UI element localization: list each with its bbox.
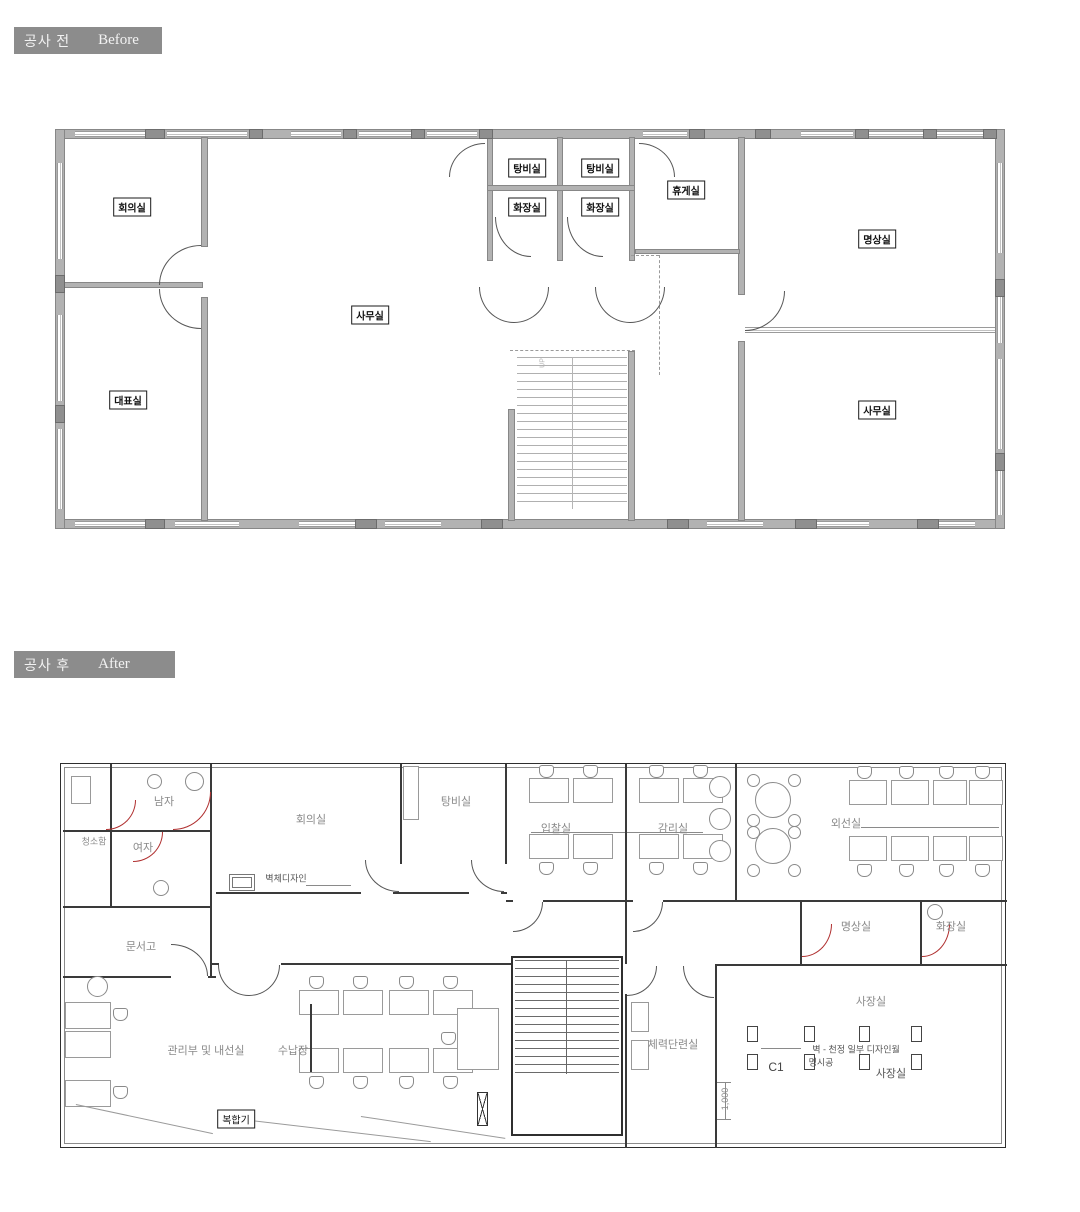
- room-label-office_center: 사무실: [351, 306, 389, 325]
- window: [935, 131, 985, 137]
- desk: [573, 834, 613, 859]
- chair: [353, 1076, 368, 1089]
- chair: [399, 976, 414, 989]
- chair: [441, 1032, 456, 1045]
- desk: [65, 1080, 111, 1107]
- window: [175, 521, 239, 527]
- room-label-men: 남자: [154, 793, 174, 809]
- desk: [529, 778, 569, 803]
- wall-segment: [738, 341, 745, 521]
- wall-segment: [625, 900, 627, 964]
- room-label-pantry_1: 탕비실: [508, 159, 546, 178]
- column-post: [859, 1054, 870, 1070]
- desk: [299, 990, 339, 1015]
- door-swing-arc: [683, 966, 714, 998]
- chair: [309, 976, 324, 989]
- column: [923, 129, 937, 139]
- chair: [113, 1008, 128, 1021]
- column: [667, 519, 689, 529]
- round-chair: [87, 976, 108, 997]
- wall-segment: [506, 900, 513, 902]
- column: [343, 129, 357, 139]
- column: [55, 405, 65, 423]
- diagonal-line: [76, 1104, 213, 1134]
- desk: [849, 780, 887, 805]
- chair: [539, 862, 554, 875]
- window: [57, 163, 63, 259]
- wall-segment: [716, 964, 1007, 966]
- chair: [649, 765, 664, 778]
- after-header-korean: 공사 후: [24, 655, 70, 675]
- column-post: [804, 1026, 815, 1042]
- dashed-line: [510, 350, 635, 351]
- room-label-outside_line: 외선실: [831, 815, 861, 831]
- room-label-admin: 관리부 및 내선실: [168, 1042, 245, 1058]
- round-chair: [709, 776, 731, 798]
- desk: [389, 990, 429, 1015]
- leader-line: [861, 827, 999, 828]
- window: [745, 327, 995, 333]
- column: [755, 129, 771, 139]
- column: [355, 519, 377, 529]
- room-label-cleaning: 청소함: [82, 835, 107, 848]
- wall-segment: [400, 764, 402, 864]
- window: [75, 521, 145, 527]
- desk: [343, 1048, 383, 1073]
- chair: [899, 864, 914, 877]
- room-label-ceo: 대표실: [109, 391, 147, 410]
- room-label-lounge: 휴게실: [667, 181, 705, 200]
- door-swing-arc: [745, 291, 785, 331]
- room-label-bidding: 입찰실: [541, 820, 571, 836]
- wall-segment: [201, 297, 208, 521]
- chair: [975, 766, 990, 779]
- leader-line: [761, 1048, 801, 1049]
- round-chair: [788, 826, 801, 839]
- wall-segment: [201, 137, 208, 247]
- door-swing-arc: [513, 902, 543, 932]
- chair: [443, 976, 458, 989]
- door-swing-arc: [365, 860, 399, 892]
- chair: [443, 1076, 458, 1089]
- desk: [389, 1048, 429, 1073]
- window: [643, 131, 687, 137]
- annotation-president_small: 사장실: [876, 1065, 906, 1081]
- room-label-meeting: 회의실: [296, 811, 326, 827]
- room-label-supervision: 감리실: [658, 820, 688, 836]
- column-post: [747, 1026, 758, 1042]
- wall-segment: [310, 1004, 312, 1072]
- room-label-toilet_2: 화장실: [581, 198, 619, 217]
- wall-segment: [501, 892, 507, 894]
- column: [983, 129, 997, 139]
- window: [359, 131, 411, 137]
- wall-segment: [625, 994, 627, 1148]
- window: [707, 521, 763, 527]
- wall-segment: [738, 137, 745, 295]
- annotation-wall_design: 벽체디자인: [265, 872, 306, 885]
- wall-segment: [628, 351, 635, 521]
- chair: [583, 862, 598, 875]
- door-swing-arc: [449, 143, 485, 177]
- room-label-archive: 문서고: [126, 938, 156, 954]
- stair-center-line: [572, 357, 573, 509]
- wall-segment: [487, 185, 635, 191]
- sink: [153, 880, 169, 896]
- room-label-copier: 복합기: [217, 1110, 255, 1129]
- door-swing-arc: [218, 965, 249, 996]
- round-chair: [709, 808, 731, 830]
- chair: [857, 864, 872, 877]
- column: [917, 519, 939, 529]
- wall-segment: [735, 764, 737, 900]
- desk: [933, 780, 967, 805]
- chair: [899, 766, 914, 779]
- annotation-design_wall_note: 벽 - 천정 일부 디자인월: [812, 1043, 900, 1056]
- stairs-up-label: UP: [540, 358, 547, 368]
- round-chair: [747, 864, 760, 877]
- window: [997, 469, 1003, 515]
- column: [855, 129, 869, 139]
- column: [249, 129, 263, 139]
- desk: [343, 990, 383, 1015]
- room-label-cabinet: 수납장: [278, 1042, 308, 1058]
- double-door-arc: [479, 287, 549, 323]
- desk: [457, 1008, 499, 1070]
- window: [57, 315, 63, 401]
- before-header-english: Before: [98, 32, 139, 49]
- wall-segment: [393, 892, 469, 894]
- annotation-c1: C1: [768, 1060, 783, 1074]
- chair: [113, 1086, 128, 1099]
- equipment: [631, 1002, 649, 1032]
- double-door-arc: [595, 287, 665, 323]
- door-swing-arc: [159, 245, 201, 285]
- leader-line: [717, 1082, 731, 1083]
- door-swing-arc: [627, 966, 657, 996]
- door-swing-arc-red: [802, 924, 832, 957]
- room-label-meeting: 회의실: [113, 198, 151, 217]
- column: [145, 519, 165, 529]
- chair: [309, 1076, 324, 1089]
- door-swing-arc: [249, 965, 280, 996]
- chair: [353, 976, 368, 989]
- window: [291, 131, 341, 137]
- column: [689, 129, 705, 139]
- column-post: [747, 1054, 758, 1070]
- desk: [933, 836, 967, 861]
- wall-segment: [508, 409, 515, 521]
- column: [55, 275, 65, 293]
- shaft-marker: [477, 1092, 488, 1126]
- door-swing-arc: [567, 217, 603, 257]
- door-swing-arc: [471, 860, 504, 892]
- column: [481, 519, 503, 529]
- after-header-english: After: [98, 656, 130, 673]
- desk: [969, 780, 1003, 805]
- desk: [65, 1002, 111, 1029]
- column-post: [911, 1054, 922, 1070]
- annotation-dimension: 1,000: [720, 1088, 730, 1111]
- desk: [573, 778, 613, 803]
- desk: [639, 834, 679, 859]
- after-header-bar: 공사 후 After: [14, 651, 175, 678]
- door-swing-arc: [495, 217, 531, 257]
- window: [427, 131, 477, 137]
- room-label-president: 사장실: [856, 993, 886, 1009]
- room-label-pantry_2: 탕비실: [581, 159, 619, 178]
- chair: [939, 864, 954, 877]
- wall-segment: [505, 764, 507, 864]
- chair: [939, 766, 954, 779]
- annotation-spec_note: 명시공: [809, 1056, 834, 1069]
- door-swing-arc: [633, 902, 663, 932]
- room-label-toilet_1: 화장실: [508, 198, 546, 217]
- leader-line: [306, 885, 351, 886]
- wall-segment: [281, 963, 511, 965]
- window: [813, 521, 869, 527]
- wall-segment: [63, 976, 171, 978]
- dashed-line: [659, 255, 660, 375]
- column: [795, 519, 817, 529]
- wall-segment: [487, 137, 493, 261]
- desk: [639, 778, 679, 803]
- round-table: [755, 782, 791, 818]
- chair: [583, 765, 598, 778]
- round-chair: [788, 864, 801, 877]
- chair: [539, 765, 554, 778]
- wall-segment: [216, 892, 361, 894]
- sink: [147, 774, 162, 789]
- window: [997, 163, 1003, 253]
- chair: [693, 765, 708, 778]
- wall-segment: [557, 137, 563, 261]
- design-wall: [229, 874, 255, 891]
- pantry-counter: [403, 766, 419, 820]
- wall-segment: [635, 249, 740, 254]
- chair: [649, 862, 664, 875]
- desk: [65, 1031, 111, 1058]
- wall-segment: [110, 764, 112, 906]
- room-label-office_right: 사무실: [858, 401, 896, 420]
- column-post: [911, 1026, 922, 1042]
- before-header-bar: 공사 전 Before: [14, 27, 162, 54]
- window: [801, 131, 853, 137]
- before-header-korean: 공사 전: [24, 31, 70, 51]
- round-table: [755, 828, 791, 864]
- sink: [185, 772, 204, 791]
- chair: [975, 864, 990, 877]
- stair-treads: [515, 960, 619, 1074]
- leader-line: [717, 1119, 731, 1120]
- window: [997, 359, 1003, 449]
- wall-segment: [715, 964, 717, 1148]
- room-label-pantry: 탕비실: [441, 793, 471, 809]
- window: [167, 131, 247, 137]
- room-label-meditation: 명상실: [841, 918, 871, 934]
- door-swing-arc: [639, 143, 675, 177]
- door-swing-arc: [159, 289, 201, 329]
- column: [995, 279, 1005, 297]
- chair: [857, 766, 872, 779]
- wall-segment: [63, 906, 211, 908]
- chair: [693, 862, 708, 875]
- room-label-meditation: 명상실: [858, 230, 896, 249]
- window: [385, 521, 441, 527]
- door-swing-arc-red: [106, 800, 136, 830]
- window: [57, 429, 63, 509]
- round-chair: [747, 826, 760, 839]
- room-label-fitness: 체력단련실: [648, 1036, 699, 1052]
- window: [299, 521, 359, 527]
- column-post: [859, 1026, 870, 1042]
- room-label-women: 여자: [133, 839, 153, 855]
- room-label-toilet: 화장실: [936, 918, 966, 934]
- door-swing-arc-red: [173, 792, 211, 830]
- round-chair: [747, 774, 760, 787]
- desk: [529, 834, 569, 859]
- column: [145, 129, 165, 139]
- desk: [891, 780, 929, 805]
- wall-segment: [629, 137, 635, 261]
- column: [995, 453, 1005, 471]
- round-chair: [709, 840, 731, 862]
- urinal: [71, 776, 91, 804]
- window: [867, 131, 923, 137]
- desk: [969, 836, 1003, 861]
- round-chair: [788, 774, 801, 787]
- column: [479, 129, 493, 139]
- window: [75, 131, 145, 137]
- after-floor-plan: 남자청소함여자문서고회의실탕비실입찰실감리실외선실명상실화장실사장실체력단련실관…: [60, 763, 1006, 1148]
- desk: [849, 836, 887, 861]
- stair-center-line: [566, 960, 567, 1074]
- dashed-line: [631, 255, 659, 256]
- column: [411, 129, 425, 139]
- door-swing-arc: [171, 944, 208, 976]
- wall-segment: [663, 900, 1007, 902]
- before-floor-plan: 회의실대표실사무실탕비실탕비실화장실화장실휴게실명상실사무실UP: [55, 129, 1005, 529]
- chair: [399, 1076, 414, 1089]
- equipment: [631, 1040, 649, 1070]
- wall-segment: [543, 900, 633, 902]
- desk: [891, 836, 929, 861]
